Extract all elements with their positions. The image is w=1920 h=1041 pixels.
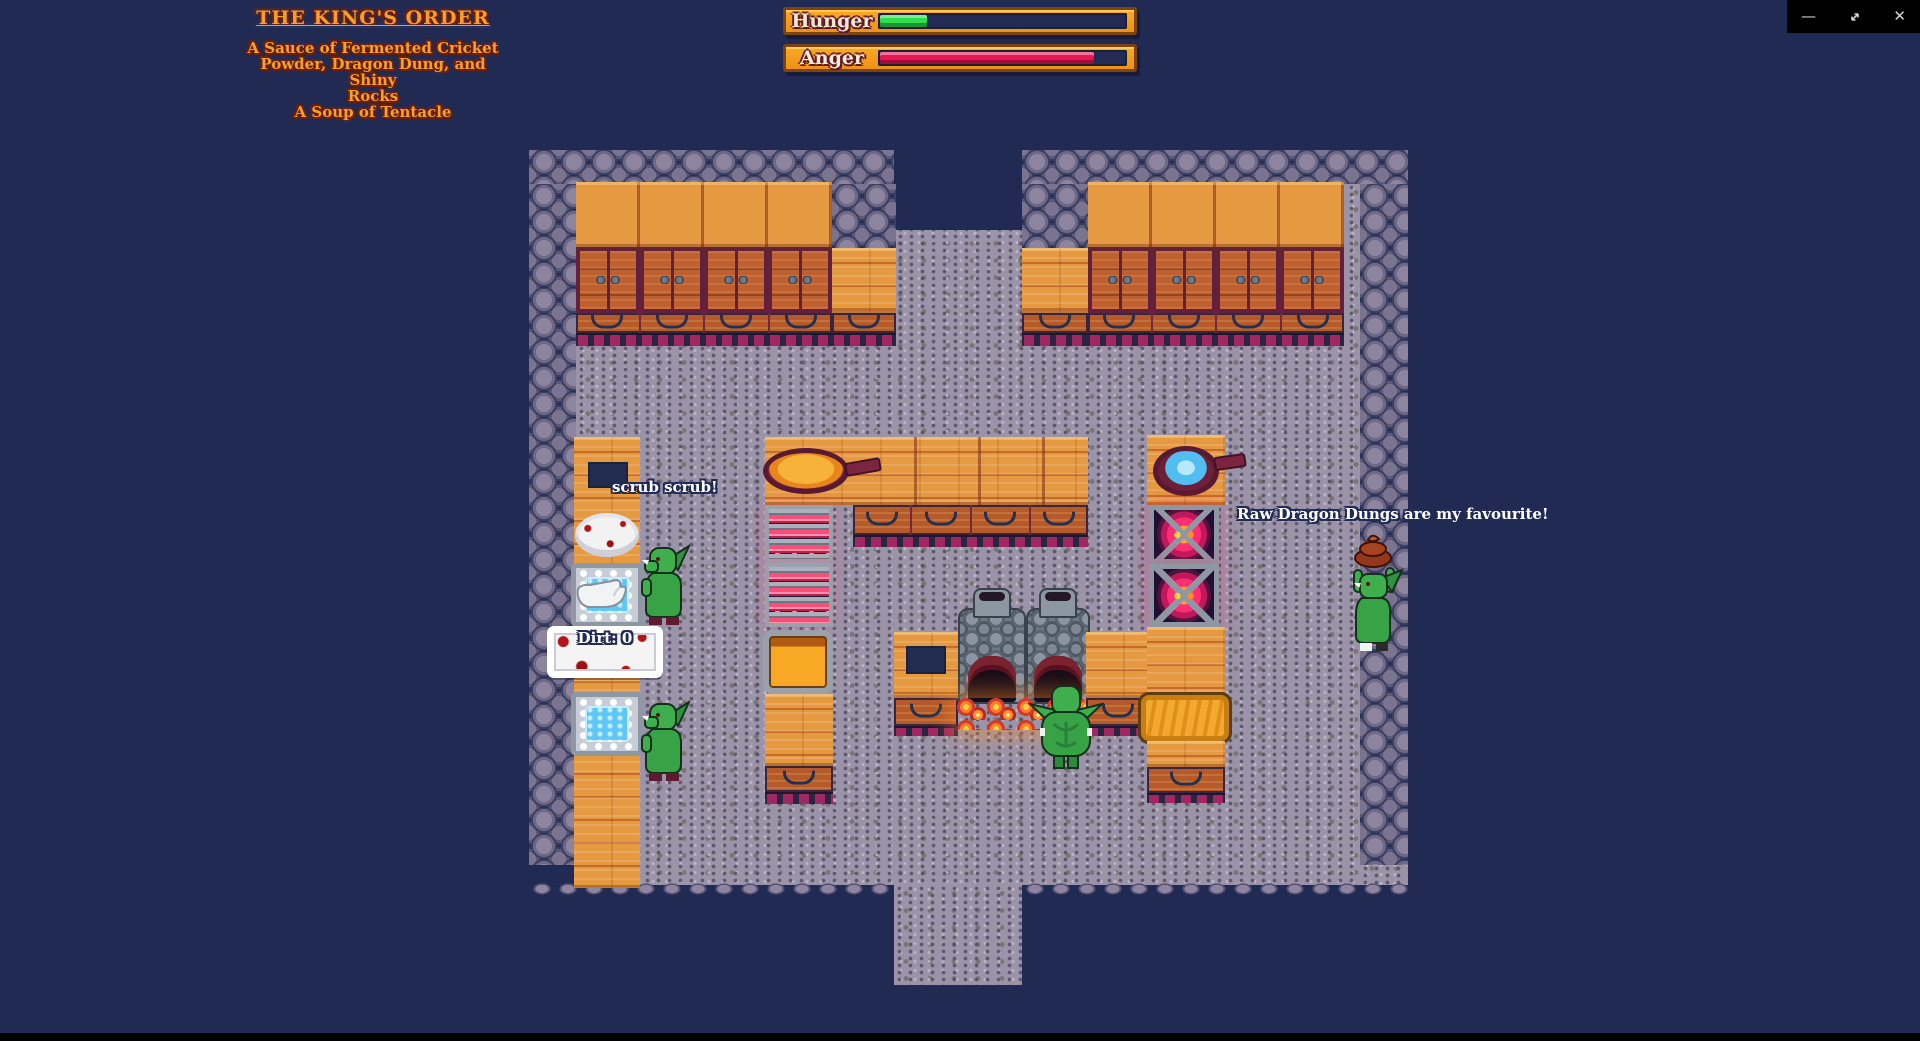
drawer-handle	[1232, 315, 1264, 329]
oven-chimney	[973, 588, 1011, 618]
gold-cutting-board[interactable]	[1141, 695, 1229, 741]
stove-column-drawer[interactable]	[1147, 767, 1225, 793]
drawer[interactable]	[1022, 313, 1088, 333]
stove-counter-mid[interactable]	[1147, 627, 1225, 695]
dirty-plates-stack[interactable]	[575, 513, 639, 557]
restore-icon[interactable]	[1848, 10, 1862, 24]
drawer[interactable]	[1147, 767, 1225, 793]
hunger-bar: Hunger	[783, 7, 1137, 35]
goblin-dishwasher-icon[interactable]	[636, 536, 690, 628]
floor-edge-stones-right	[1022, 879, 1408, 899]
stove-counter-low[interactable]	[1147, 741, 1225, 767]
wall-strip-left-of-alcove	[832, 184, 896, 248]
meat-grill-top[interactable]	[765, 505, 833, 563]
cabinet-door[interactable]	[1152, 247, 1216, 313]
end-drawer-left[interactable]	[832, 313, 896, 333]
stove-column-base	[1147, 793, 1225, 803]
drawer[interactable]	[1088, 313, 1153, 333]
drawer-handle	[866, 512, 898, 526]
order-line: A Sauce of Fermented Cricket	[247, 40, 499, 56]
window-controls: — ✕	[1787, 0, 1920, 33]
upper-cupboards-left[interactable]	[576, 182, 832, 247]
drawer[interactable]	[770, 313, 833, 333]
drawer[interactable]	[972, 505, 1031, 535]
kings-order-panel: THE KING'S ORDER A Sauce of Fermented Cr…	[247, 10, 499, 120]
drawer-handle	[1039, 315, 1071, 329]
cabinet-door[interactable]	[1280, 247, 1344, 313]
center-left-base	[765, 792, 833, 804]
end-base-left	[832, 333, 896, 346]
sink-with-jug[interactable]	[571, 563, 643, 627]
end-cupboard-right[interactable]	[1022, 248, 1088, 313]
gravy-jug-icon	[572, 574, 630, 614]
sink-blue[interactable]	[571, 692, 643, 756]
speech-bubble-dishwasher: scrub scrub!	[612, 478, 718, 496]
bottom-black-bar	[0, 1033, 1920, 1041]
drawer-handle	[1168, 315, 1200, 329]
drawer[interactable]	[894, 698, 958, 726]
drawer-handle	[1043, 512, 1075, 526]
entrance-corridor-floor	[894, 885, 1022, 985]
center-counter-base	[853, 535, 1088, 547]
anger-bar-fill	[880, 52, 1094, 64]
drawer[interactable]	[912, 505, 971, 535]
drawer[interactable]	[1282, 313, 1345, 333]
cabinet-base-right	[1088, 333, 1344, 346]
upper-cupboards-right[interactable]	[1088, 182, 1344, 247]
game-screen: Dirt: 0	[0, 0, 1920, 1041]
drawer-handle	[1103, 315, 1135, 329]
cabinet-drawers-left[interactable]	[576, 313, 832, 333]
cabinet-doors-right[interactable]	[1088, 247, 1344, 313]
center-counter-drawers[interactable]	[853, 505, 1088, 535]
oven-counter-left-base	[894, 726, 958, 736]
anger-bar-label: Anger	[786, 47, 878, 69]
goblin-dishwasher2-icon[interactable]	[636, 692, 690, 784]
center-counter-joints	[853, 437, 1088, 505]
drawer-handle	[656, 315, 688, 329]
cabinet-door[interactable]	[1216, 247, 1280, 313]
hunger-bar-label: Hunger	[786, 10, 878, 32]
order-line: Rocks	[247, 88, 499, 104]
dirt-counter-label: Dirt: 0	[547, 629, 663, 647]
drawer-handle	[848, 315, 880, 329]
fire-stove-top[interactable]	[1149, 505, 1219, 564]
drawer[interactable]	[765, 766, 833, 792]
drawer-handle	[1297, 315, 1329, 329]
drawer-handle	[910, 704, 942, 718]
end-drawer-right[interactable]	[1022, 313, 1088, 333]
oven-counter-left-drawer[interactable]	[894, 698, 958, 726]
fire-stove-bottom[interactable]	[1149, 564, 1219, 627]
pan-orange-sauce[interactable]	[763, 448, 849, 494]
drawer[interactable]	[1217, 313, 1282, 333]
wall-strip-right-of-alcove	[1022, 184, 1088, 248]
drawer[interactable]	[705, 313, 770, 333]
pot-blue-water[interactable]	[1153, 446, 1219, 496]
cabinet-door[interactable]	[1088, 247, 1152, 313]
soapy-water	[585, 706, 629, 742]
hunger-bar-fill	[880, 15, 927, 27]
drawer[interactable]	[576, 313, 641, 333]
minimize-icon[interactable]: —	[1801, 9, 1816, 24]
drawer-handle	[785, 315, 817, 329]
center-left-lower-counter[interactable]	[765, 694, 833, 766]
orange-goo-bin[interactable]	[763, 630, 833, 694]
diagonal-resize-arrows-icon	[1848, 10, 1862, 24]
drawer[interactable]	[1153, 313, 1218, 333]
cabinet-door[interactable]	[704, 247, 768, 313]
drawer[interactable]	[641, 313, 706, 333]
drawer-handle	[1102, 704, 1134, 718]
close-icon[interactable]: ✕	[1893, 9, 1906, 24]
oven-mouth	[968, 656, 1016, 702]
stone-oven-left[interactable]	[958, 608, 1026, 704]
anger-bar: Anger	[783, 44, 1137, 72]
drawer-handle	[984, 512, 1016, 526]
cutting-board-dark2[interactable]	[906, 646, 946, 674]
wall-top-right	[1022, 150, 1408, 184]
hunger-bar-track	[878, 13, 1127, 29]
drawer[interactable]	[853, 505, 912, 535]
drawer-handle	[1170, 772, 1202, 786]
meat-grill-bottom[interactable]	[765, 563, 833, 627]
oven-chimney	[1039, 588, 1077, 618]
drawer[interactable]	[832, 313, 896, 333]
drawer-handle	[925, 512, 957, 526]
end-cupboard-left[interactable]	[832, 248, 896, 313]
cabinet-drawers-right[interactable]	[1088, 313, 1344, 333]
cabinet-door[interactable]	[640, 247, 704, 313]
wall-left	[529, 184, 576, 865]
goblin-dung-carrier-icon[interactable]	[1344, 530, 1406, 656]
drawer-handle	[720, 315, 752, 329]
wall-top-left	[529, 150, 894, 184]
drawer-handle	[591, 315, 623, 329]
cabinet-base-left	[576, 333, 832, 346]
speech-bubble-dung-lover: Raw Dragon Dungs are my favourite!	[1237, 505, 1549, 523]
wall-right	[1360, 184, 1408, 865]
order-line: Powder, Dragon Dung, and Shiny	[247, 56, 499, 88]
drawer-handle	[783, 771, 815, 785]
end-base-right	[1022, 333, 1088, 346]
drawer[interactable]	[1031, 505, 1088, 535]
center-left-drawer[interactable]	[765, 766, 833, 792]
order-line: A Soup of Tentacle	[247, 104, 499, 120]
cabinet-door[interactable]	[576, 247, 640, 313]
kings-order-title: THE KING'S ORDER	[247, 10, 499, 26]
goblin-cook-icon[interactable]	[1028, 680, 1104, 772]
top-alcove-opening	[894, 184, 1022, 230]
cabinet-door[interactable]	[768, 247, 832, 313]
cabinet-doors-left[interactable]	[576, 247, 832, 313]
anger-bar-track	[878, 50, 1127, 66]
